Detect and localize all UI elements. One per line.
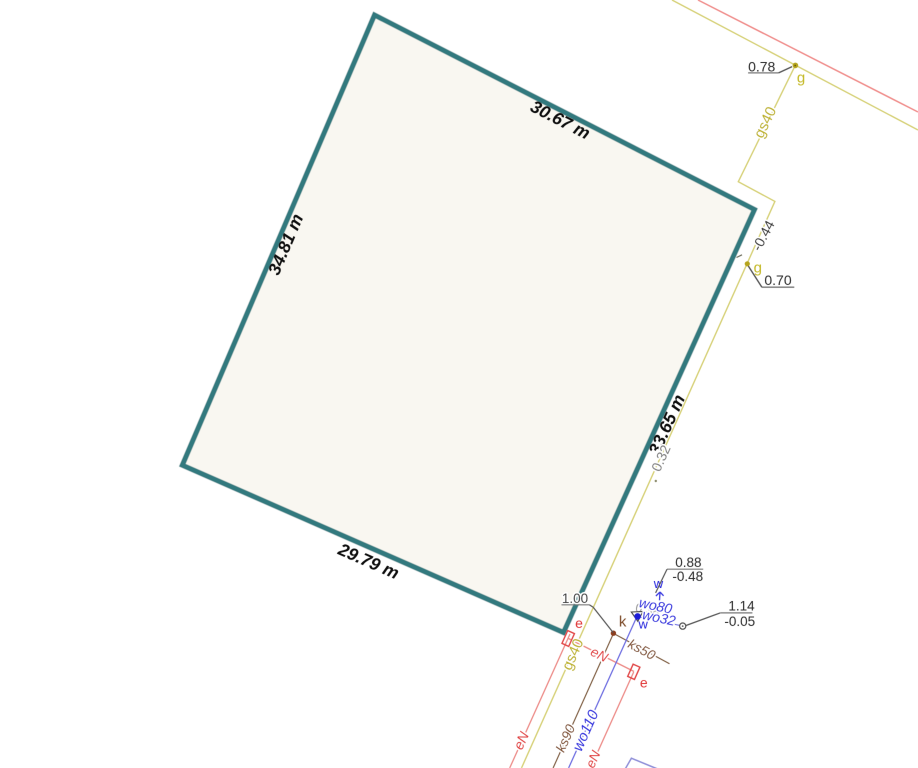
svg-text:g: g [754,260,762,277]
svg-text:e: e [640,675,648,691]
svg-text:k: k [619,614,627,631]
svg-text:0.70: 0.70 [764,272,791,288]
svg-text:-0.48: -0.48 [672,569,703,584]
svg-text:0.88: 0.88 [675,555,701,570]
svg-text:0.78: 0.78 [748,59,775,75]
svg-text:e: e [575,615,583,631]
svg-text:1.00: 1.00 [562,591,588,606]
svg-text:g: g [797,70,805,87]
svg-text:-0.05: -0.05 [724,614,755,629]
svg-text:1.14: 1.14 [728,598,755,613]
